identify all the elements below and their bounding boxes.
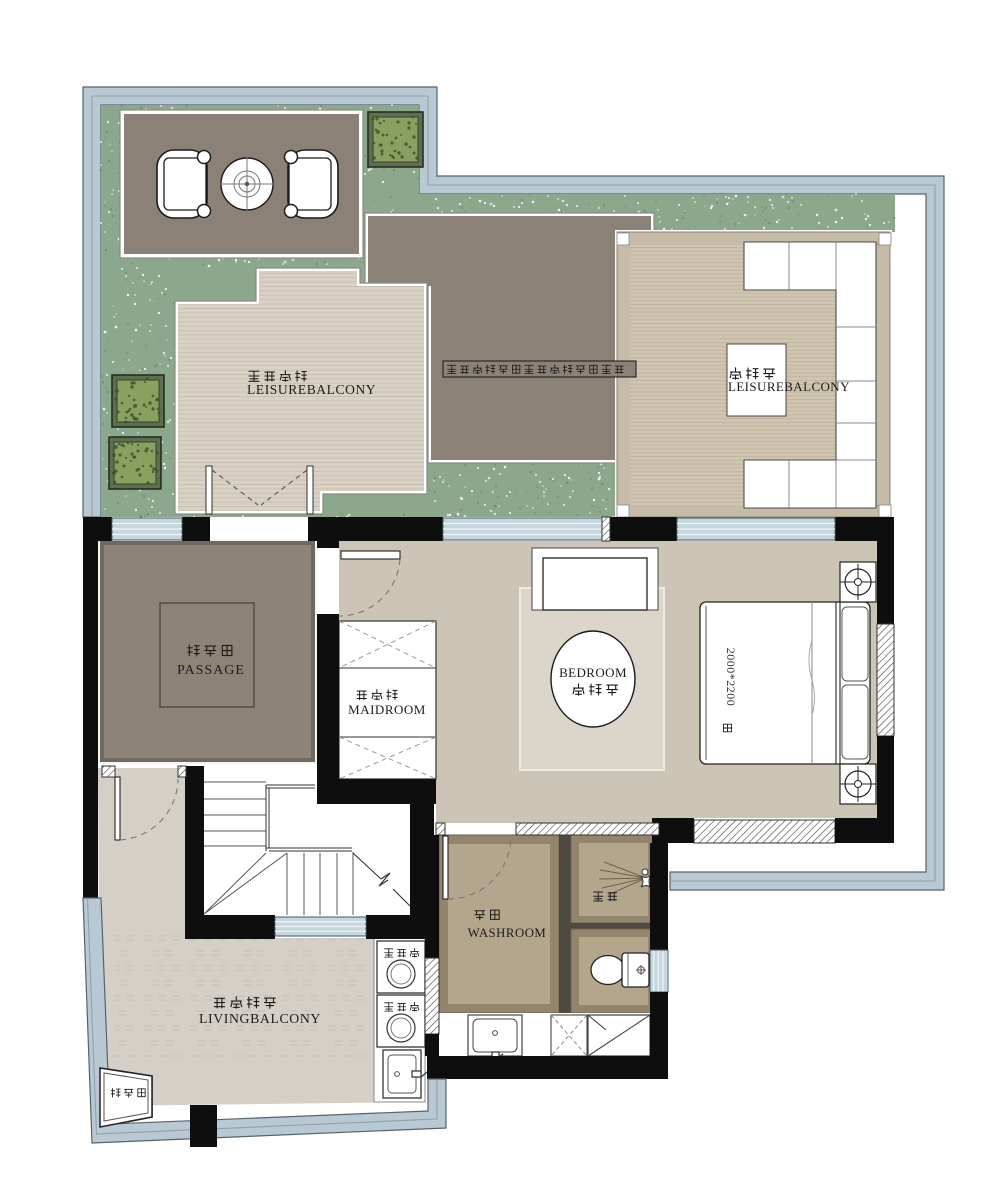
svg-text:LEISUREBALCONY: LEISUREBALCONY bbox=[247, 382, 376, 397]
svg-text:LEISUREBALCONY: LEISUREBALCONY bbox=[728, 379, 850, 394]
svg-text:LIVINGBALCONY: LIVINGBALCONY bbox=[199, 1011, 321, 1026]
svg-text:2000*2200: 2000*2200 bbox=[724, 648, 738, 707]
svg-text:MAIDROOM: MAIDROOM bbox=[348, 702, 426, 717]
svg-text:WASHROOM: WASHROOM bbox=[468, 926, 547, 940]
svg-text:BEDROOM: BEDROOM bbox=[559, 665, 627, 680]
svg-text:PASSAGE: PASSAGE bbox=[177, 663, 245, 678]
